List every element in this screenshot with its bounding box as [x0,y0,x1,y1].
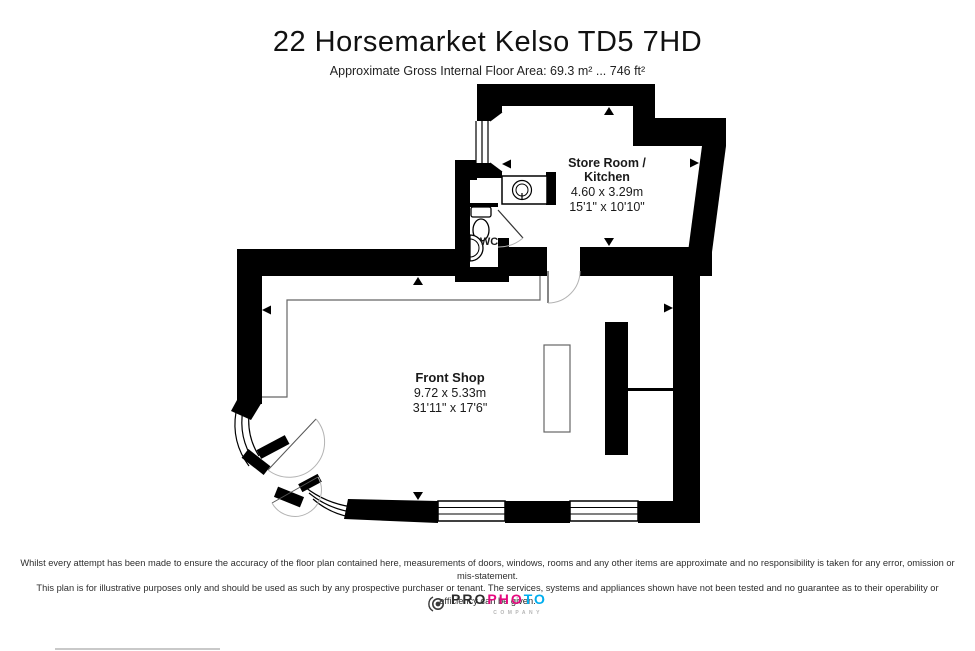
corridor-door [548,271,580,303]
bay-door-leaf-2 [298,474,322,492]
store-room-label-line2: Kitchen [584,170,630,184]
store-room-dims-metric: 4.60 x 3.29m [571,185,643,199]
store-room-window [476,112,502,172]
front-shop-dims-metric: 9.72 x 5.33m [414,386,486,400]
arrow-shop-left [262,306,271,315]
disclaimer-line-1: Whilst every attempt has been made to en… [17,557,958,582]
store-room-dims-imperial: 15'1" x 10'10" [569,200,645,214]
front-shop-dims-imperial: 31'11" x 17'6" [413,401,488,415]
curved-window-lower [305,487,352,517]
camera-lens-icon [428,595,446,613]
kitchen-counter [502,176,547,204]
floorplan-page: 22 Horsemarket Kelso TD5 7HD Approximate… [0,0,975,651]
arrow-shop-right [664,304,673,313]
store-room-label-line1: Store Room / [568,156,646,170]
logo-text-pho: PHO [487,591,523,607]
cropped-edge-artifact [55,648,220,650]
bay-door-leaf-1 [257,435,290,459]
logo-text-company: COMPANY [451,610,547,616]
logo-text-to: TO [524,591,547,607]
shop-counter [544,345,570,432]
arrow-store-left [502,160,511,169]
prophoto-logo: PROPHOTO COMPANY [0,591,975,618]
arrow-store-right [690,159,699,168]
partition-line [628,388,673,391]
toilet-cistern [471,207,491,217]
arrow-store-bottom [604,238,614,246]
arrow-shop-bottom [413,492,423,500]
pillar [605,322,628,455]
wc-fixtures [470,207,491,261]
arrow-store-top [604,107,614,115]
floor-plan: Store Room / Kitchen 4.60 x 3.29m 15'1" … [0,0,975,651]
logo-text-pro: PRO [451,591,487,607]
shop-window-2 [570,501,638,521]
bay-mullion-2 [274,487,304,508]
arrow-shop-top [413,277,423,285]
front-shop-label: Front Shop [415,370,484,385]
bay-shopfront [235,406,352,517]
shop-window-1 [438,501,505,521]
wc-label: WC [480,236,498,248]
interior-step-line [262,276,540,397]
